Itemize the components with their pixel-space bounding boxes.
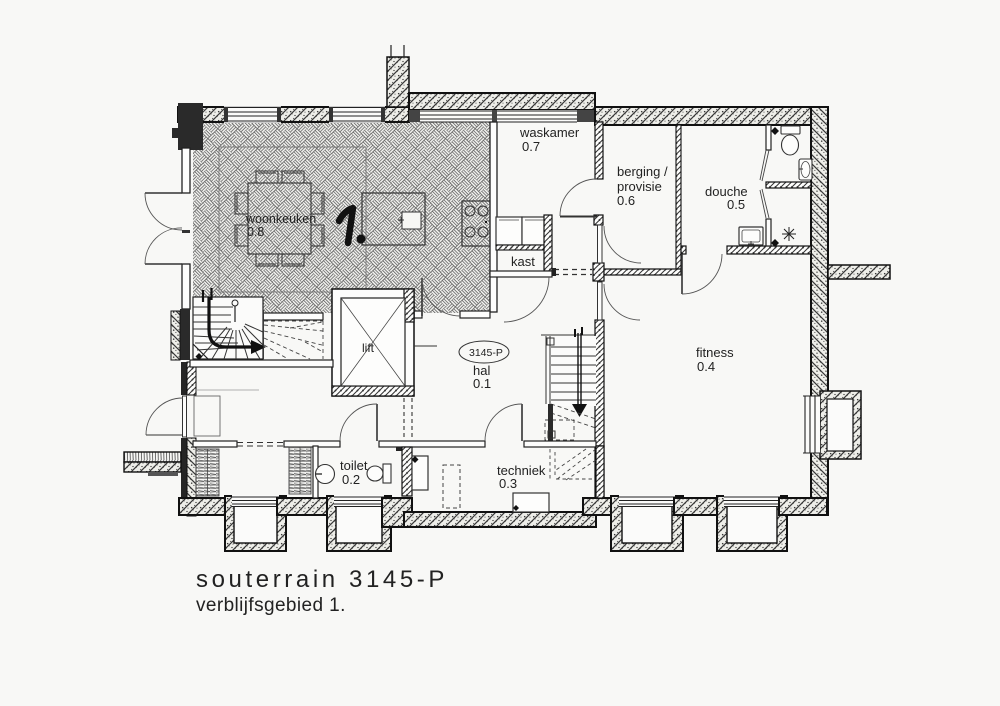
- svg-text:0.4: 0.4: [697, 359, 715, 374]
- svg-text:waskamer: waskamer: [519, 125, 580, 140]
- svg-text:0.8: 0.8: [247, 225, 264, 239]
- svg-text:0.6: 0.6: [617, 193, 635, 208]
- svg-text:0.1: 0.1: [473, 376, 491, 391]
- svg-text:souterrain 3145-P: souterrain 3145-P: [196, 566, 448, 593]
- svg-text:verblijfsgebied 1.: verblijfsgebied 1.: [196, 595, 346, 616]
- svg-text:0.5: 0.5: [727, 197, 745, 212]
- svg-text:3145-P: 3145-P: [469, 347, 503, 359]
- svg-text:fitness: fitness: [696, 345, 734, 360]
- svg-text:0.7: 0.7: [522, 139, 540, 154]
- svg-text:0.2: 0.2: [342, 472, 360, 487]
- svg-text:berging /: berging /: [617, 164, 668, 179]
- svg-text:0.3: 0.3: [499, 476, 517, 491]
- svg-text:woonkeuken: woonkeuken: [245, 212, 316, 226]
- svg-text:toilet: toilet: [340, 458, 368, 473]
- svg-text:lift: lift: [362, 341, 375, 355]
- svg-text:provisie: provisie: [617, 179, 662, 194]
- svg-text:kast: kast: [511, 254, 535, 269]
